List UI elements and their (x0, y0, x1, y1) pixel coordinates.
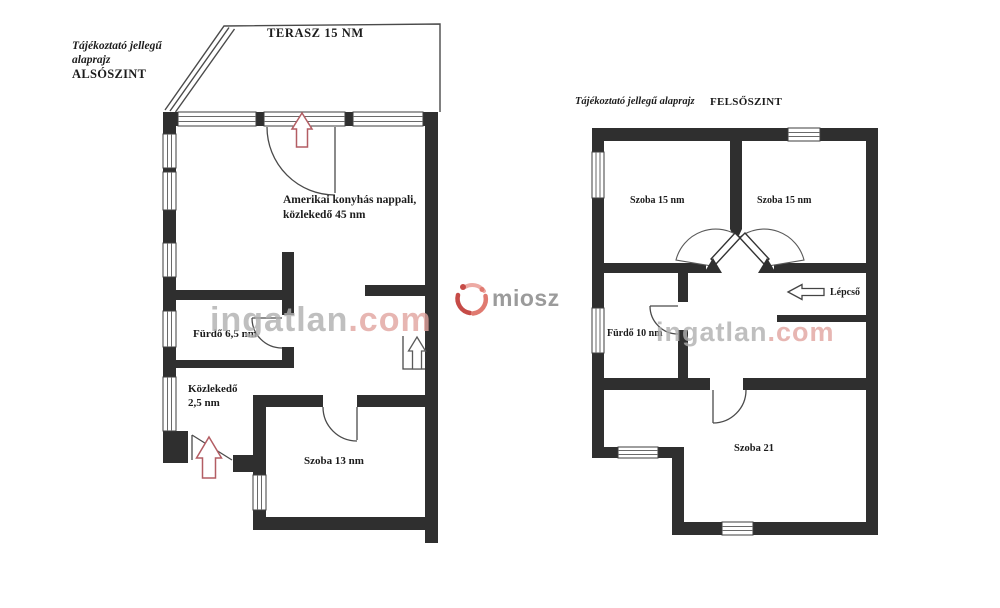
living-room-label: Amerikai konyhás nappali, közlekedő 45 n… (283, 193, 416, 223)
upper-plan-level: FELSŐSZINT (710, 96, 782, 109)
miosz-logo-icon (458, 284, 486, 314)
terrace-label: TERASZ 15 NM (267, 26, 364, 41)
watermark-brand-red: .com (348, 301, 431, 339)
room15-right-label: Szoba 15 nm (757, 195, 811, 207)
watermark-right: ingatlan.com (656, 317, 835, 348)
miosz-logo-text: miosz (492, 285, 560, 312)
living-room-line1: Amerikai konyhás nappali, (283, 193, 416, 208)
lower-title-level: ALSÓSZINT (72, 67, 162, 82)
room15-left-label: Szoba 15 nm (630, 195, 684, 207)
room13-label: Szoba 13 nm (304, 455, 364, 468)
watermark-brand-gray: ingatlan (656, 317, 768, 347)
watermark-left: ingatlan.com (210, 301, 432, 340)
stairs-left-arrow-icon (788, 285, 824, 300)
entrance-arrow-bottom-icon (197, 437, 222, 478)
hallway-line1: Közlekedő (188, 383, 238, 397)
lower-title-line2: alaprajz (72, 54, 162, 68)
room21-label: Szoba 21 (734, 443, 774, 455)
watermark-brand-red: .com (768, 317, 835, 347)
watermark-brand-gray: ingatlan (210, 301, 348, 339)
upper-plan-title: Tájékoztató jellegű alaprajz (575, 96, 695, 108)
bathroom-label-upper: Fürdő 10 nm (607, 328, 663, 340)
hallway-label: Közlekedő 2,5 nm (188, 383, 238, 411)
lower-title-line1: Tájékoztató jellegű (72, 40, 162, 54)
hallway-line2: 2,5 nm (188, 397, 238, 411)
stairs-label: Lépcső (830, 287, 860, 299)
stairs-up-arrow-icon (409, 337, 426, 369)
lower-plan-title: Tájékoztató jellegű alaprajz ALSÓSZINT (72, 40, 162, 82)
floorplan-page: Tájékoztató jellegű alaprajz ALSÓSZINT T… (0, 0, 1000, 608)
living-room-line2: közlekedő 45 nm (283, 208, 416, 223)
